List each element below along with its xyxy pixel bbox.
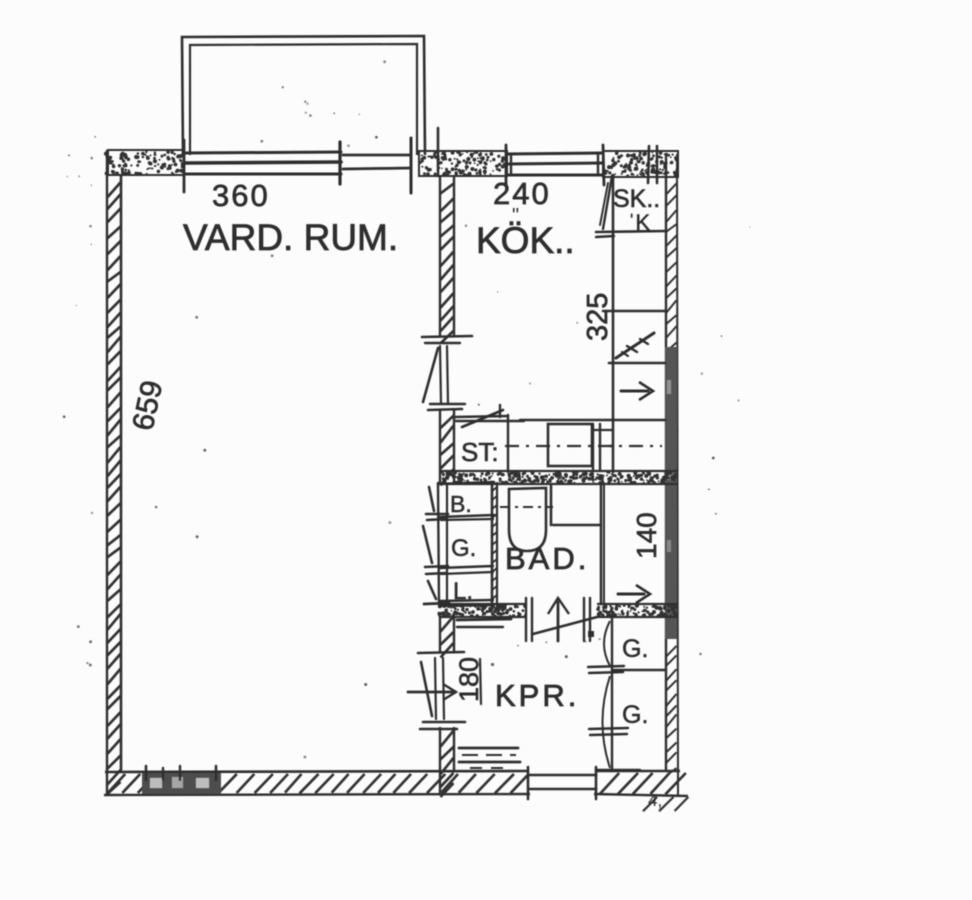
svg-text:325: 325 [582,293,614,341]
svg-text:KPR.: KPR. [495,678,579,713]
svg-text:360: 360 [212,178,270,213]
svg-text:659: 659 [127,378,170,434]
svg-text:BAD.: BAD. [505,541,589,576]
svg-text:VARD. RUM.: VARD. RUM. [183,217,398,258]
svg-text:G.: G. [622,635,648,663]
svg-text:ˈK: ˈK [628,210,650,235]
svg-text:SK..: SK.. [613,185,660,213]
svg-text:L.: L. [453,578,473,605]
svg-text:ST:: ST: [461,437,499,467]
svg-text:G.: G. [451,535,476,562]
svg-text:B.: B. [450,491,472,517]
svg-text:KÖK..: KÖK.. [476,220,575,261]
svg-text:G.: G. [622,701,648,729]
svg-text:140: 140 [631,512,662,559]
svg-text:4,: 4, [648,791,662,810]
svg-text:240: 240 [493,176,551,211]
